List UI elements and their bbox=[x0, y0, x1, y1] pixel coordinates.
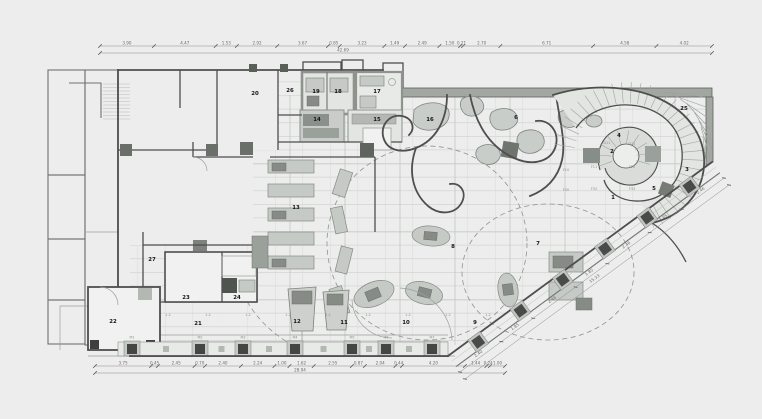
dimension-value: 0.21 bbox=[457, 40, 467, 45]
pilaster-core bbox=[290, 344, 300, 354]
dimension-value: 2.40 bbox=[218, 360, 228, 365]
room-number-label: 26 bbox=[286, 88, 294, 94]
room-number-label: 11 bbox=[340, 320, 348, 326]
room-number-label: 27 bbox=[148, 257, 156, 263]
wall-column bbox=[249, 64, 257, 72]
reference-code-label: M1 bbox=[129, 336, 134, 340]
column bbox=[90, 340, 99, 349]
reference-code-label: 1.2 bbox=[485, 313, 490, 317]
dimension-value: 0.45 bbox=[150, 360, 160, 365]
room-number-label: 10 bbox=[402, 320, 410, 326]
room-number-label: 18 bbox=[334, 89, 342, 95]
mullion bbox=[163, 346, 169, 352]
dimension-value: 0.24 bbox=[484, 360, 494, 365]
room-number-label: 25 bbox=[680, 106, 688, 112]
reference-code-label: F30 bbox=[563, 188, 569, 192]
dimension-value: 3.23 bbox=[357, 40, 367, 45]
room-number-label: 15 bbox=[373, 117, 381, 123]
column bbox=[120, 144, 132, 156]
reference-code-label: 1.2 bbox=[365, 313, 370, 317]
column bbox=[360, 143, 374, 157]
room-number-label: 24 bbox=[233, 295, 241, 301]
room-number-label: 12 bbox=[293, 319, 301, 325]
room-number-label: 5 bbox=[652, 186, 656, 192]
reference-code-label: M7 bbox=[429, 336, 434, 340]
reference-code-label: F11 bbox=[591, 165, 597, 169]
floor-plan-page: 3.904.471.532.923.670.853.231.492.491.50… bbox=[0, 0, 762, 419]
room-number-label: 17 bbox=[373, 89, 381, 95]
reference-code-label: D12 bbox=[629, 142, 636, 146]
mullion bbox=[266, 346, 272, 352]
mullion bbox=[406, 346, 412, 352]
reference-code-label: F33 bbox=[629, 187, 635, 191]
dimension-value: 3.67 bbox=[298, 40, 308, 45]
mullion bbox=[219, 346, 225, 352]
room-number-label: 7 bbox=[536, 241, 540, 247]
reference-code-label: M4 bbox=[292, 336, 297, 340]
reference-code-label: 1.2 bbox=[405, 313, 410, 317]
dimension-total: 28.94 bbox=[294, 368, 306, 373]
pilaster-core bbox=[347, 344, 357, 354]
dimension-value: 2.45 bbox=[172, 360, 182, 365]
dimension-value: 1.50 bbox=[445, 40, 455, 45]
reference-code-label: 1.2 bbox=[285, 313, 290, 317]
dimension-value: 2.70 bbox=[477, 40, 487, 45]
dimension-value: 1.62 bbox=[297, 360, 307, 365]
room-number-label: 14 bbox=[313, 117, 321, 123]
pilaster-core bbox=[127, 344, 137, 354]
reference-code-label: M6 bbox=[383, 336, 388, 340]
room-number-label: 19 bbox=[312, 89, 320, 95]
reference-code-label: 1.2 bbox=[245, 313, 250, 317]
reference-code-label: 1.2 bbox=[325, 313, 330, 317]
wall-column bbox=[280, 64, 288, 72]
dimension-value: 0.87 bbox=[354, 360, 364, 365]
room-number-label: 9 bbox=[473, 320, 477, 326]
dimension-value: 2.24 bbox=[253, 360, 263, 365]
dimension-value: 4.02 bbox=[680, 40, 690, 45]
dimension-value: 3.75 bbox=[119, 360, 129, 365]
pilaster-core bbox=[381, 344, 391, 354]
dimension-value: 2.55 bbox=[328, 360, 338, 365]
room-number-label: 21 bbox=[194, 321, 202, 327]
room-number-label: 8 bbox=[451, 244, 455, 250]
dimension-value: 4.47 bbox=[180, 40, 190, 45]
reference-code-label: F32 bbox=[591, 187, 597, 191]
dimension-value: 2.04 bbox=[376, 360, 386, 365]
reference-code-label: 1.2 bbox=[205, 313, 210, 317]
column bbox=[240, 142, 253, 155]
mullion bbox=[366, 346, 372, 352]
room-number-label: 6 bbox=[514, 115, 518, 121]
room-number-label: 4 bbox=[617, 133, 621, 139]
dimension-value: 1.53 bbox=[222, 40, 232, 45]
dimension-value: 1.49 bbox=[390, 40, 400, 45]
reference-code-label: 1.2 bbox=[165, 313, 170, 317]
dimension-value: 4.20 bbox=[429, 360, 439, 365]
dimension-value: 6.71 bbox=[542, 40, 552, 45]
room-number-label: 13 bbox=[292, 205, 300, 211]
reference-code-label: 1.2 bbox=[445, 313, 450, 317]
column bbox=[206, 144, 218, 156]
dimension-total: 42.69 bbox=[337, 48, 349, 53]
room-number-label: 1 bbox=[611, 195, 615, 201]
pilaster-core bbox=[427, 344, 437, 354]
dimension-value: 1.00 bbox=[277, 360, 287, 365]
dimension-value: 3.90 bbox=[122, 40, 132, 45]
dimension-value: 4.58 bbox=[620, 40, 630, 45]
room-number-label: 23 bbox=[182, 295, 190, 301]
pilaster-core bbox=[238, 344, 248, 354]
dimension-value: 1.00 bbox=[493, 360, 503, 365]
mullion bbox=[321, 346, 327, 352]
reference-code-label: D11 bbox=[604, 141, 611, 145]
reference-code-label: M2 bbox=[197, 336, 202, 340]
reference-code-label: M5 bbox=[349, 336, 354, 340]
floor-plan-drawing: 3.904.471.532.923.670.853.231.492.491.50… bbox=[0, 0, 762, 419]
room-number-label: 16 bbox=[426, 117, 434, 123]
dimension-value: 2.92 bbox=[252, 40, 262, 45]
room-number-label: 20 bbox=[251, 91, 259, 97]
rooms-23-24 bbox=[165, 252, 257, 302]
room-number-label: 22 bbox=[109, 319, 117, 325]
dimension-value: 0.70 bbox=[195, 360, 205, 365]
reference-code-label: F12 bbox=[629, 165, 635, 169]
pilaster-core bbox=[195, 344, 205, 354]
dimension-value: 2.49 bbox=[418, 40, 428, 45]
reference-code-label: M3 bbox=[240, 336, 245, 340]
reference-code-label: F10 bbox=[563, 168, 569, 172]
room-number-label: 3 bbox=[685, 167, 689, 173]
dimension-value: 0.85 bbox=[329, 40, 339, 45]
bottom-colonnade bbox=[118, 341, 448, 356]
room-number-label: 2 bbox=[610, 149, 614, 155]
dimension-value: 0.44 bbox=[394, 360, 404, 365]
